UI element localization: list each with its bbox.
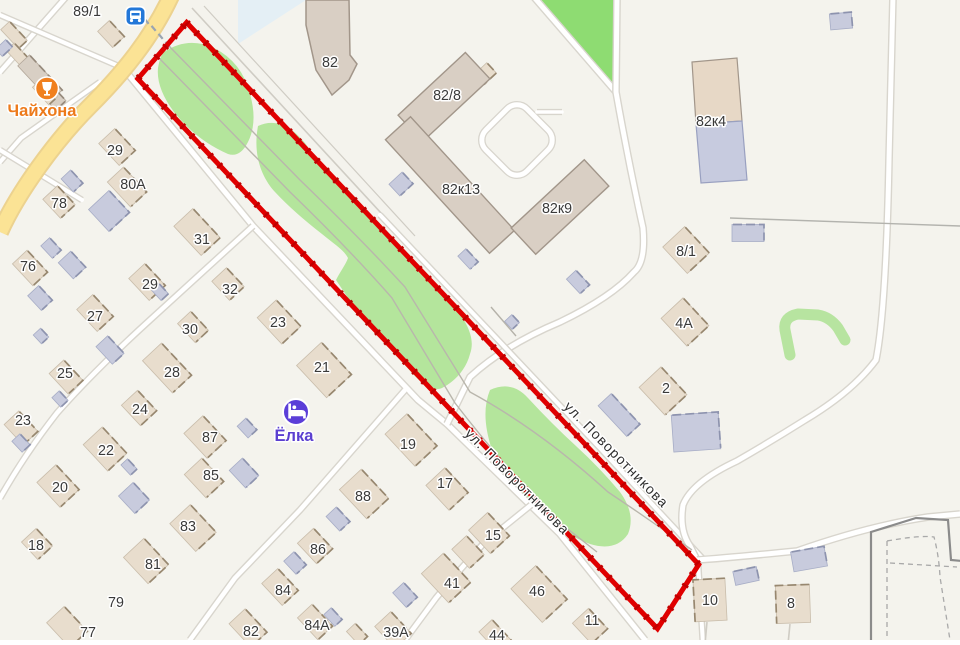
svg-text:31: 31 bbox=[194, 232, 210, 248]
svg-text:2: 2 bbox=[662, 381, 670, 397]
svg-text:87: 87 bbox=[202, 430, 218, 446]
svg-text:84: 84 bbox=[275, 583, 291, 599]
svg-text:21: 21 bbox=[314, 360, 330, 376]
svg-text:15: 15 bbox=[485, 528, 501, 544]
svg-text:85: 85 bbox=[203, 468, 219, 484]
svg-text:8: 8 bbox=[787, 596, 795, 612]
svg-text:30: 30 bbox=[182, 322, 198, 338]
svg-text:8/1: 8/1 bbox=[676, 244, 696, 260]
svg-text:23: 23 bbox=[270, 315, 286, 331]
svg-text:80A: 80A bbox=[120, 177, 146, 193]
svg-text:18: 18 bbox=[28, 538, 44, 554]
svg-text:22: 22 bbox=[98, 443, 114, 459]
svg-text:82: 82 bbox=[322, 55, 338, 71]
svg-text:41: 41 bbox=[444, 576, 460, 592]
svg-text:11: 11 bbox=[585, 613, 600, 629]
svg-text:82/8: 82/8 bbox=[433, 88, 461, 104]
svg-text:88: 88 bbox=[355, 489, 371, 505]
svg-text:46: 46 bbox=[529, 584, 545, 600]
svg-text:Чайхона: Чайхона bbox=[8, 102, 78, 120]
svg-text:77: 77 bbox=[80, 625, 96, 640]
svg-text:32: 32 bbox=[222, 282, 238, 298]
svg-text:24: 24 bbox=[132, 402, 148, 418]
svg-text:82: 82 bbox=[243, 624, 259, 640]
svg-text:39A: 39A bbox=[383, 625, 409, 640]
svg-text:89/1: 89/1 bbox=[73, 4, 101, 20]
svg-text:29: 29 bbox=[107, 143, 123, 159]
svg-text:84A: 84A bbox=[304, 618, 330, 634]
svg-text:82к13: 82к13 bbox=[442, 182, 480, 198]
svg-text:29: 29 bbox=[142, 277, 158, 293]
svg-text:82к4: 82к4 bbox=[696, 114, 726, 130]
svg-text:19: 19 bbox=[400, 437, 416, 453]
svg-text:78: 78 bbox=[51, 196, 67, 212]
svg-text:17: 17 bbox=[437, 476, 453, 492]
svg-text:10: 10 bbox=[702, 593, 718, 609]
svg-text:20: 20 bbox=[52, 480, 68, 496]
svg-text:23: 23 bbox=[15, 413, 31, 429]
svg-text:25: 25 bbox=[57, 366, 73, 382]
svg-text:82к9: 82к9 bbox=[542, 201, 572, 217]
svg-text:86: 86 bbox=[310, 542, 326, 558]
svg-text:81: 81 bbox=[145, 557, 161, 573]
svg-text:28: 28 bbox=[164, 365, 180, 381]
svg-text:27: 27 bbox=[87, 309, 103, 325]
svg-text:44: 44 bbox=[489, 628, 505, 640]
svg-text:83: 83 bbox=[180, 519, 196, 535]
svg-text:76: 76 bbox=[20, 259, 36, 275]
svg-text:4A: 4A bbox=[675, 316, 693, 332]
svg-text:79: 79 bbox=[108, 595, 124, 611]
svg-text:Ёлка: Ёлка bbox=[275, 427, 315, 445]
